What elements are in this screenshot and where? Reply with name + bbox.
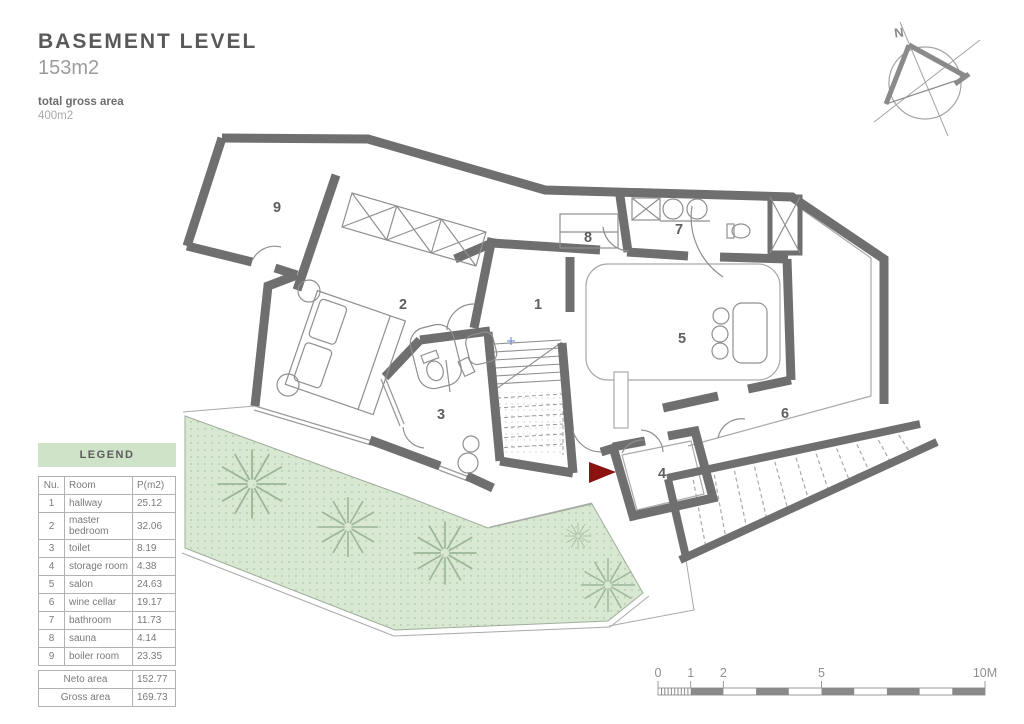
north-compass: N (874, 22, 980, 136)
page: 1 2 3 4 5 6 7 8 9 N (0, 0, 1024, 724)
interior-stairs (492, 337, 563, 455)
legend-totals-table: Neto area 152.77 Gross area 169.73 (38, 670, 176, 707)
gross-area-label: Gross area (39, 689, 133, 707)
stool (712, 326, 728, 342)
room-label-5: 5 (678, 331, 686, 347)
row-room: storage room (65, 558, 133, 576)
row-area: 25.12 (133, 495, 176, 513)
legend-row: 1 hallway 25.12 (39, 495, 176, 513)
entrance-arrow-icon (589, 462, 616, 483)
stool (713, 308, 729, 324)
table (733, 303, 767, 363)
neto-area-value: 152.77 (133, 671, 176, 689)
row-area: 23.35 (133, 648, 176, 666)
row-area: 24.63 (133, 576, 176, 594)
row-room: hallway (65, 495, 133, 513)
row-nu: 1 (39, 495, 65, 513)
row-area: 11.73 (133, 612, 176, 630)
room-label-4: 4 (658, 466, 666, 482)
level-area: 153m2 (38, 57, 257, 80)
row-area: 32.06 (133, 513, 176, 540)
row-nu: 2 (39, 513, 65, 540)
col-nu: Nu. (39, 477, 65, 495)
toilet (421, 350, 446, 383)
row-nu: 3 (39, 540, 65, 558)
toilet (727, 224, 750, 238)
sink (687, 199, 707, 219)
row-nu: 6 (39, 594, 65, 612)
legend-row: 2 master bedroom 32.06 (39, 513, 176, 540)
row-nu: 7 (39, 612, 65, 630)
row-nu: 9 (39, 648, 65, 666)
shower (632, 198, 660, 220)
row-room: sauna (65, 630, 133, 648)
col-room: Room (65, 477, 133, 495)
room-label-2: 2 (399, 297, 407, 313)
row-room: boiler room (65, 648, 133, 666)
sink (663, 199, 683, 219)
row-nu: 8 (39, 630, 65, 648)
gross-area-value: 169.73 (133, 689, 176, 707)
title-block: BASEMENT LEVEL 153m2 total gross area 40… (38, 30, 257, 122)
row-room: toilet (65, 540, 133, 558)
page-title: BASEMENT LEVEL (38, 30, 257, 54)
shower-fixture (463, 436, 479, 452)
scale-label-1: 1 (687, 666, 694, 680)
scale-label-10m: 10M (973, 666, 997, 680)
neto-area-label: Neto area (39, 671, 133, 689)
legend-column-header-row: Nu. Room P(m2) (39, 477, 176, 495)
row-room: master bedroom (65, 513, 133, 540)
row-room: salon (65, 576, 133, 594)
row-room: bathroom (65, 612, 133, 630)
neto-area-row: Neto area 152.77 (39, 671, 176, 689)
row-area: 4.38 (133, 558, 176, 576)
room-label-8: 8 (584, 230, 592, 246)
row-area: 4.14 (133, 630, 176, 648)
stool (712, 343, 728, 359)
legend-row: 3 toilet 8.19 (39, 540, 176, 558)
row-area: 8.19 (133, 540, 176, 558)
legend-panel: LEGEND Nu. Room P(m2) 1 hallway 25.12 2 … (38, 443, 176, 707)
terrace-garden (182, 406, 694, 636)
scale-bar: 0 1 2 5 10M (655, 666, 998, 695)
legend-row: 4 storage room 4.38 (39, 558, 176, 576)
shower-fixture (458, 453, 478, 473)
room-label-1: 1 (534, 297, 542, 313)
col-area: P(m2) (133, 477, 176, 495)
gross-area-value: 400m2 (38, 110, 257, 122)
stair-marker (507, 337, 515, 345)
scale-label-0: 0 (655, 666, 662, 680)
legend-header: LEGEND (38, 443, 176, 467)
north-label: N (893, 24, 904, 40)
row-area: 19.17 (133, 594, 176, 612)
room-label-9: 9 (273, 200, 281, 216)
room-label-7: 7 (675, 222, 683, 238)
gross-area-label: total gross area (38, 96, 257, 108)
legend-row: 9 boiler room 23.35 (39, 648, 176, 666)
row-nu: 4 (39, 558, 65, 576)
row-nu: 5 (39, 576, 65, 594)
room-label-6: 6 (781, 406, 789, 422)
row-room: wine cellar (65, 594, 133, 612)
legend-table: Nu. Room P(m2) 1 hallway 25.12 2 master … (38, 476, 176, 666)
room-label-3: 3 (437, 407, 445, 423)
scale-label-2: 2 (720, 666, 727, 680)
legend-row: 5 salon 24.63 (39, 576, 176, 594)
scale-label-5: 5 (818, 666, 825, 680)
legend-row: 6 wine cellar 19.17 (39, 594, 176, 612)
gross-area-row: Gross area 169.73 (39, 689, 176, 707)
legend-row: 8 sauna 4.14 (39, 630, 176, 648)
legend-row: 7 bathroom 11.73 (39, 612, 176, 630)
